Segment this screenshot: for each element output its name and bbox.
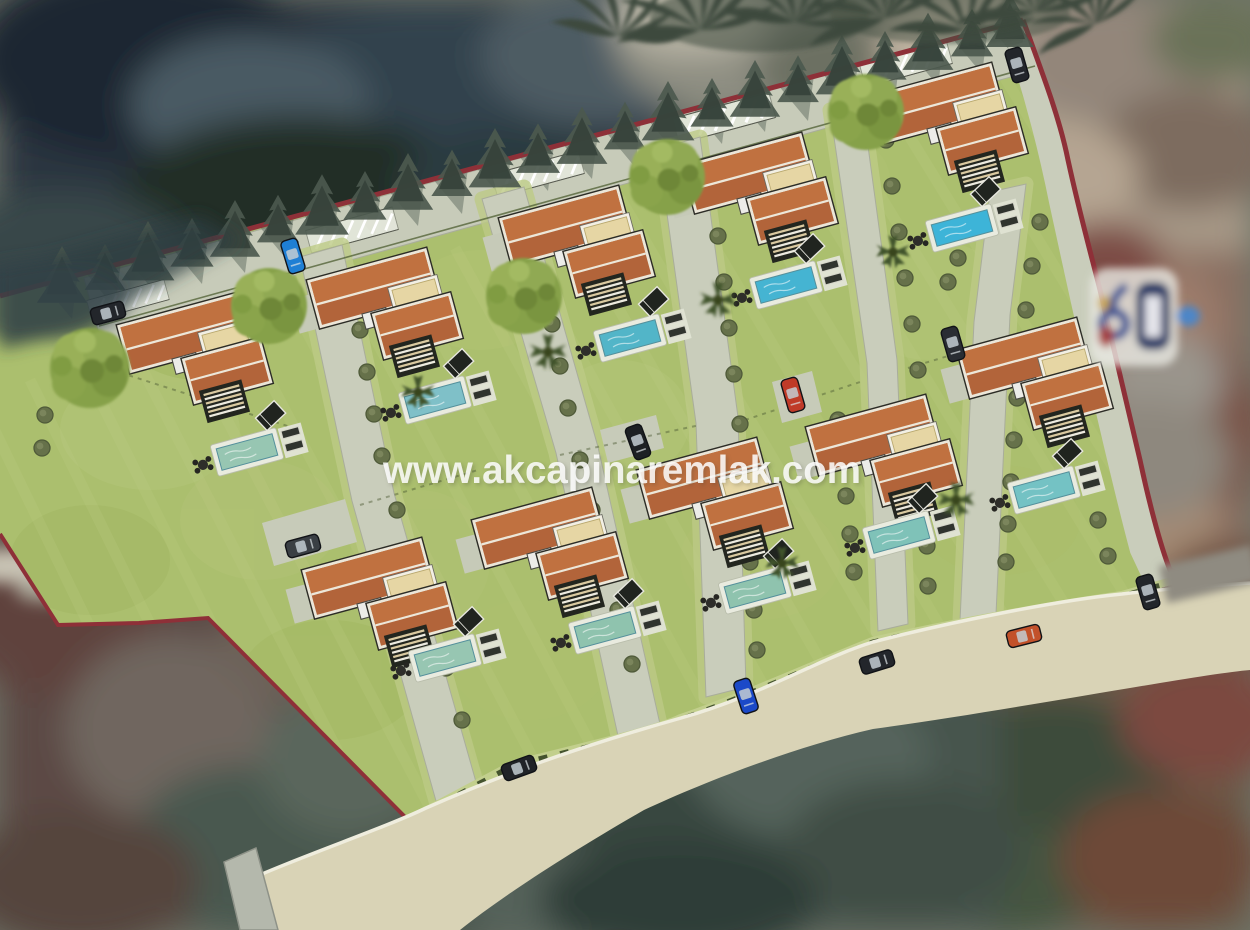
svg-text:www.akcapinaremlak.com: www.akcapinaremlak.com	[382, 449, 861, 492]
